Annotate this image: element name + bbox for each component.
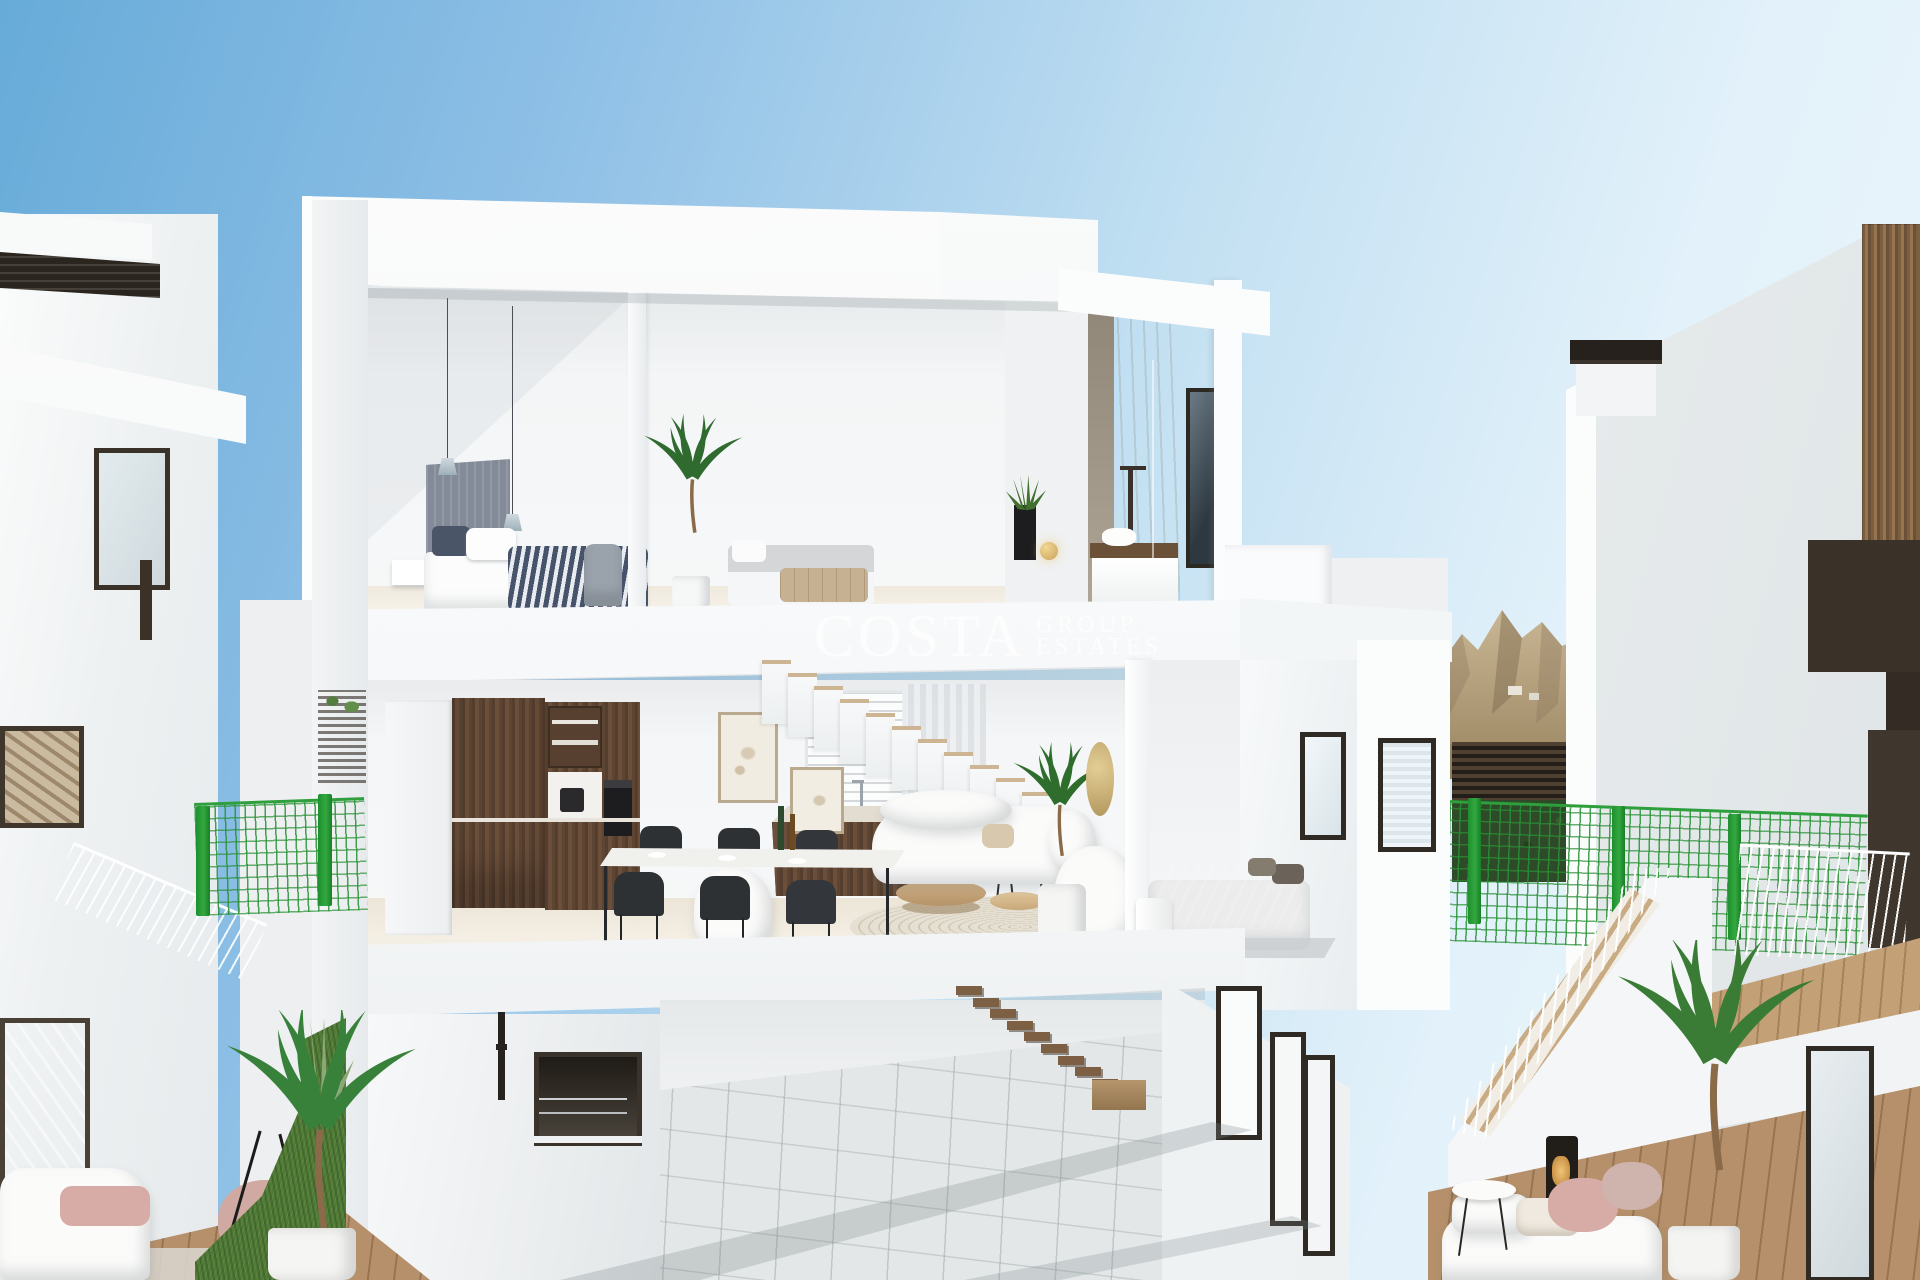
plate bbox=[648, 852, 666, 858]
fence-post bbox=[1468, 798, 1481, 924]
dining-chair-near bbox=[614, 872, 664, 916]
bedroom-window bbox=[1300, 732, 1346, 840]
left-upper-window bbox=[94, 448, 170, 590]
vanity-shelf bbox=[1090, 543, 1178, 558]
stair-step bbox=[840, 699, 869, 763]
fence-post bbox=[196, 806, 210, 916]
wall-art-frame bbox=[718, 712, 778, 803]
left-window-stairs-view bbox=[0, 726, 84, 828]
faucet-spout bbox=[852, 780, 864, 783]
distant-house bbox=[1508, 686, 1522, 695]
wood-tread bbox=[1024, 1032, 1050, 1041]
espresso-machine bbox=[560, 788, 584, 812]
shelf-dishes bbox=[552, 720, 598, 724]
wood-tread bbox=[956, 986, 982, 995]
pillow-dark bbox=[1272, 864, 1304, 884]
window-rail bbox=[539, 1098, 627, 1100]
gold-ball-lamp bbox=[1040, 542, 1058, 560]
vessel-sink bbox=[1102, 528, 1136, 546]
basement-door bbox=[1216, 986, 1262, 1140]
dining-chair-near bbox=[786, 880, 836, 924]
gray-armchair-topfloor bbox=[584, 544, 622, 606]
kitchen-open-shelf bbox=[548, 706, 602, 768]
chimney-cap bbox=[1570, 340, 1662, 360]
stair-step bbox=[814, 686, 843, 750]
pergola-slats bbox=[1452, 742, 1578, 806]
fence-post bbox=[318, 794, 332, 906]
wood-tread bbox=[1007, 1021, 1033, 1030]
dark-balcony-box bbox=[1808, 540, 1920, 672]
bed-bench bbox=[780, 568, 868, 602]
stair-step bbox=[892, 726, 921, 790]
plate bbox=[788, 858, 806, 864]
wood-tread bbox=[990, 1009, 1016, 1018]
chaise-cushion-pink bbox=[60, 1186, 150, 1226]
kitchen-counter bbox=[452, 818, 640, 822]
kitchen-tall-white-unit bbox=[385, 700, 452, 935]
gold-mirror bbox=[1086, 742, 1114, 816]
wood-tread bbox=[1041, 1044, 1067, 1053]
shelf-dishes bbox=[552, 740, 598, 745]
wood-panel-wall bbox=[1862, 224, 1920, 548]
pipe-joint bbox=[496, 1044, 507, 1050]
pouf-pink-small bbox=[1602, 1162, 1662, 1210]
island-faucet bbox=[860, 782, 863, 806]
wall-art-frame-small bbox=[790, 767, 844, 834]
black-pipe bbox=[498, 1012, 505, 1100]
wood-tread bbox=[1075, 1067, 1101, 1076]
watermark-brand: COSTA bbox=[814, 608, 1026, 664]
glass-partition bbox=[1152, 360, 1154, 560]
wood-tread bbox=[1058, 1056, 1084, 1065]
built-in-oven bbox=[604, 780, 632, 836]
gap-view-trees-pergola bbox=[318, 690, 366, 783]
dining-chair-far bbox=[718, 828, 760, 852]
planter-sprigs bbox=[1006, 470, 1046, 515]
stair-step bbox=[762, 660, 791, 724]
striped-duvet bbox=[508, 546, 648, 612]
kitchen-cabinets-a bbox=[452, 698, 545, 908]
window-sill bbox=[534, 1136, 642, 1143]
watermark-word-group: GROUP bbox=[1036, 614, 1162, 636]
top-floor-hall-wall bbox=[1005, 290, 1089, 612]
green-mesh-fence-left bbox=[194, 797, 368, 916]
architectural-render: COSTA GROUP ESTATES bbox=[0, 0, 1920, 1280]
stair-landing-block bbox=[1092, 1080, 1146, 1110]
patio-side-table bbox=[1452, 1180, 1516, 1200]
shower-arm bbox=[1120, 466, 1146, 470]
outer-wall-window bbox=[1378, 738, 1436, 852]
stair-step bbox=[788, 673, 817, 737]
chimney bbox=[1576, 352, 1656, 416]
pendant-cord bbox=[512, 306, 513, 516]
dark-post bbox=[140, 560, 152, 640]
distant-house bbox=[1529, 693, 1539, 700]
pillow-navy bbox=[432, 526, 470, 556]
palm-pot-right bbox=[1668, 1226, 1740, 1280]
watermark: COSTA GROUP ESTATES bbox=[814, 608, 1134, 672]
pillow bbox=[732, 540, 766, 562]
wood-tread bbox=[973, 998, 999, 1007]
dining-chair-far bbox=[640, 826, 682, 850]
palm-pot-left bbox=[268, 1228, 356, 1280]
pillow-taupe bbox=[1248, 858, 1276, 876]
window-rail bbox=[539, 1112, 627, 1114]
dark-balcony-box-arm bbox=[1886, 672, 1920, 734]
wine-bottle-amber bbox=[790, 814, 795, 850]
basement-door bbox=[1270, 1032, 1306, 1226]
wine-bottle-green bbox=[778, 806, 784, 850]
pendant-cord bbox=[447, 298, 448, 460]
stair-step bbox=[866, 713, 895, 777]
watermark-word-estates: ESTATES bbox=[1036, 636, 1162, 658]
plate bbox=[718, 855, 736, 861]
floating-nightstand bbox=[392, 560, 426, 585]
dining-chair-near bbox=[700, 876, 750, 920]
